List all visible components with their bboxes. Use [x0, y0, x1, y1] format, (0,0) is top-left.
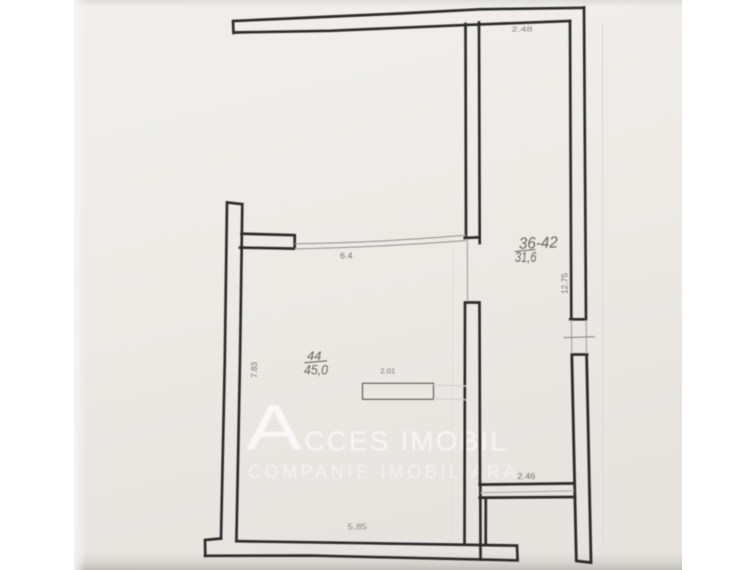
svg-text:7.83: 7.83	[250, 361, 259, 378]
svg-text:45,0: 45,0	[304, 362, 328, 378]
svg-text:2.48: 2.48	[512, 25, 533, 34]
svg-text:12.75: 12.75	[561, 272, 570, 294]
svg-text:A: A	[246, 391, 302, 463]
svg-text:2.01: 2.01	[380, 367, 395, 376]
svg-text:5.85: 5.85	[348, 522, 368, 532]
svg-text:2.46: 2.46	[517, 472, 536, 481]
svg-text:6.4: 6.4	[340, 251, 353, 260]
svg-text:COMPANIE IMOBILIARA: COMPANIE IMOBILIARA	[248, 462, 519, 482]
svg-text:CCES IMOBIL: CCES IMOBIL	[305, 426, 508, 457]
